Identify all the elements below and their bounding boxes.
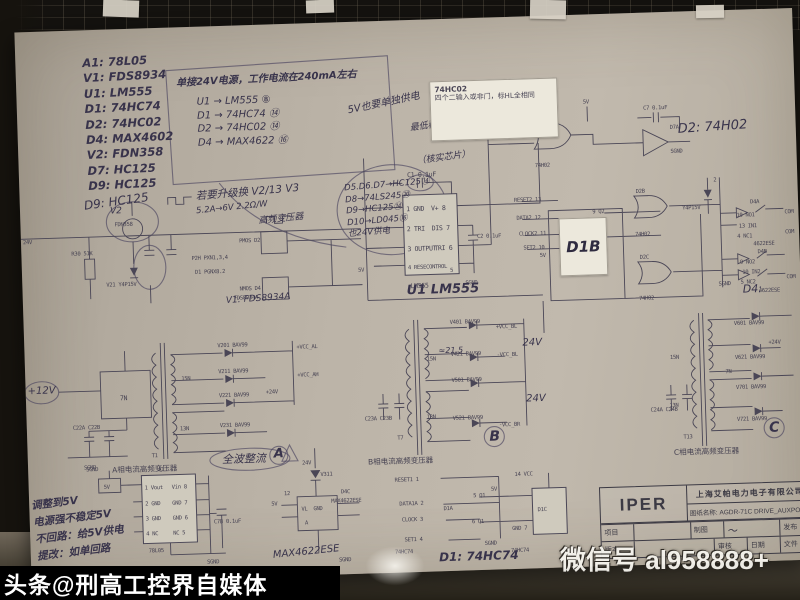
diode-v221: V221 BAV99 [219, 392, 249, 399]
label-pin2: 2 [713, 177, 716, 183]
label-c7: C7 0.1uF [643, 105, 667, 112]
winding-7n: 7N [725, 369, 731, 375]
label-d2c-chip: 74H02 [639, 295, 654, 301]
diode-v201: V201 BAV99 [217, 342, 247, 349]
d4c-pin12: 12 [284, 491, 290, 497]
diode-v211: V211 BAV99 [218, 368, 248, 375]
hand-phase-b-mark: B [489, 428, 500, 444]
u1-pin-thr: TRI 6 [434, 244, 453, 253]
d1b-5v: 5V [540, 253, 547, 259]
out-vcc-ah: +VCC_AH [297, 372, 318, 379]
label-c22: C22A C22B [73, 425, 101, 432]
u1-5v: 5V [358, 268, 365, 274]
label-24v: 24V [23, 240, 33, 246]
d4b-in2: 10 IN2 [742, 269, 760, 276]
d1a-q1bar: 6 Q1 [472, 519, 484, 525]
hand-phase-a-mark: A [274, 446, 285, 461]
label-zener: Y4P15V [682, 205, 701, 212]
d4b-no2: 9 NO2 [740, 259, 755, 265]
power-input-stage: 24V FDN358 R30 51K V21 Y4P15V PMOS D2 P2… [20, 192, 363, 309]
d1b-q: 9 Q2 [592, 209, 604, 215]
cell-release: 发布 [780, 519, 800, 536]
winding-15n: 15N [427, 356, 436, 362]
label-c2: C2 0.1uF [477, 233, 501, 240]
a1-pin-gnd3: 3 GND [146, 516, 161, 522]
drawing-name-label: 图纸名称: [690, 510, 718, 518]
u1-pin-reset: 4 RESECONTROL [408, 264, 448, 271]
watermark-band: 头条@刑高工控界自媒体 [0, 566, 340, 600]
a1-pin-vout: 1 Vout [145, 485, 163, 492]
cell-drawn: 制图 [691, 521, 724, 538]
out-24v: +24V [266, 389, 279, 395]
d1a-data1: DATA1A 2 [399, 501, 423, 508]
label-v21: V21 Y4P15V [106, 282, 137, 289]
u1-pin-vplus: V+ 8 [431, 204, 446, 212]
label-pmos: PMOS D2 [239, 238, 260, 245]
label-d1p: D1 PGNX8.2 [195, 269, 225, 276]
hand-bottom-note: 调整到5V 电源强不稳定5V 不回路：给5V供电 提改：如单回路 [30, 485, 149, 566]
a1-pin-gnd7: GND 7 [172, 500, 187, 506]
label-d4c: D4C [341, 489, 350, 495]
label-c7b: C7B 0.1uF [214, 519, 241, 526]
phase-b-transformer: 15N 13N T7 C23A C23B V401 BAV99 V421 BAV… [362, 317, 528, 467]
a1-pin-vin: Vin 8 [172, 484, 187, 490]
d1b-reset2: RESET2 13 [514, 197, 541, 204]
label-d1a: D1A [443, 506, 453, 512]
label-5v: 5V [583, 99, 590, 105]
tape-piece [306, 0, 334, 13]
u1-pin-dis: DIS 7 [432, 224, 451, 233]
a1-pin-nc5: NC 5 [173, 530, 185, 536]
note-line: D4 → MAX4622 ⑯ [198, 133, 288, 149]
tape-piece [530, 0, 566, 19]
out-minus-vcc-bl: -VCC_BL [497, 352, 519, 359]
watermark-wechat-label: 微信号 [560, 545, 638, 575]
diode-v231: V231 BAV99 [220, 422, 250, 429]
d4a-chip: 4622ESE [753, 241, 774, 248]
diode-v401: V401 BAV99 [450, 319, 480, 326]
label-a1: A1 [158, 467, 164, 473]
d4c-gnd: GND [313, 506, 322, 512]
label-t13: T13 [683, 434, 692, 440]
u1-pin-5: 5 [450, 268, 453, 274]
hand-fullwave-label: 全波整流 [222, 450, 266, 467]
label-d2c: D2C [640, 255, 649, 261]
phase-c-label: C相电流高频变压器 [674, 445, 740, 457]
label-v311: V311 [320, 472, 332, 478]
out-minus-vcc-br: -VCC_BR [499, 422, 521, 429]
diode-v501: V501 BAV99 [451, 377, 481, 384]
d4c-chip: MAX4622ESE [331, 498, 361, 505]
diode-v701: V701 BAV99 [736, 384, 766, 391]
label-com2: COM [785, 229, 795, 235]
watermark-band-text: 头条@刑高工控界自媒体 [0, 566, 267, 600]
hand-ratio-note: ≈21.5 [438, 346, 463, 356]
d4c-vl: VL [301, 506, 308, 512]
hand-phase-c-mark: C [769, 420, 780, 436]
winding-15n: 15N [670, 355, 679, 361]
cell-project: 项目 [601, 524, 634, 541]
d1b-data2: DATA2 12 [516, 215, 540, 222]
watermark-wechat: 微信号 al958888+ [560, 540, 769, 577]
out-vcc-al: +VCC_AL [296, 344, 318, 351]
label-t1: T1 [152, 453, 158, 459]
sticky-note-74hc02: 74HC02 四个二输入或非门，标HL全相同 [429, 77, 559, 141]
d4c-a: A [305, 520, 309, 526]
label-t7: T7 [397, 435, 403, 441]
analog-switches: Y4P15V 2 D4A 10 NO1 13 IN1 4 NC1 4622ESE… [681, 175, 797, 296]
hand-d1-label: D1: 74HC74 [439, 548, 519, 564]
d1a-sgnd: SGND [485, 541, 497, 547]
label-d2d-chip: 74H02 [535, 163, 550, 169]
d1a-vcc14: 14 VCC [514, 471, 532, 478]
a1-pin-nc4: 4 NC [146, 531, 158, 537]
out-vcc-bl: +VCC_BL [496, 324, 518, 331]
hand-24v-b1: 24V [522, 337, 542, 349]
diode-v521: V521 BAV99 [453, 415, 483, 422]
component-list: A1: 78L05 V1: FDS8934 U1: LM555 D1: 74HC… [82, 52, 176, 195]
a1-sgnd-top: SGND [84, 465, 96, 471]
hand-u1-label: U1 LM555 [406, 281, 479, 298]
tape-piece [103, 0, 140, 18]
label-p2h: P2H PXN1,3,4 [191, 255, 228, 262]
d1a-q1: 5 Q1 [473, 493, 485, 499]
note-chip-mapping-2: D5.D6.D7→HC125⑭ D8→74LS245⑳ D9→HC125⑭ D1… [344, 176, 434, 240]
cell-blank [634, 522, 691, 540]
out-24v: +24V [768, 339, 781, 345]
drawing-name-row: 图纸名称: AGDR-71C DRIVE_AUXPO [688, 501, 800, 521]
d1a-5v: 5V [491, 486, 498, 492]
d1a-reset1: RESET1 1 [395, 477, 419, 484]
a1-pin-gnd2: 2 GND [145, 501, 160, 507]
label-fdn358: FDN358 [114, 222, 132, 229]
title-block-header: IPER 上海艾帕电力电子有限公司 图纸名称: AGDR-71C DRIVE_A… [600, 482, 800, 525]
tape-piece [696, 5, 724, 18]
watermark-wechat-id: al958888+ [645, 545, 769, 575]
schematic-paper: 24V FDN358 R30 51K V21 Y4P15V PMOS D2 P2… [14, 8, 800, 584]
cell-signature: 〜 [724, 520, 781, 538]
company-logo: IPER [600, 486, 688, 524]
nor-gates-mid: D2B 74H02 D2C 74H02 [633, 177, 723, 302]
hand-v2-label: V2 [110, 206, 122, 216]
hand-12v-label: +12V [28, 385, 56, 397]
watermark-blob [352, 538, 438, 600]
cell-file: 文件 [781, 536, 800, 553]
d1a-gnd7: GND 7 [512, 526, 527, 532]
d4a-nc1: 4 NC1 [737, 233, 752, 239]
d1b-set2: SET2 10 [523, 245, 544, 252]
label-d2b-chip: 74H02 [635, 232, 650, 238]
phase-b-label: B相电流高频变压器 [368, 454, 434, 466]
diode-v621: V621 BAV99 [735, 354, 765, 361]
a1-chip: 78L05 [149, 548, 164, 554]
label-com3: COM [786, 274, 796, 280]
schematic-photo: 24V FDN358 R30 51K V21 Y4P15V PMOS D2 P2… [0, 0, 800, 600]
hand-d4-label: D4: [743, 282, 763, 296]
label-c23: C23A C23B [365, 416, 393, 423]
label-r30: R30 51K [71, 251, 93, 258]
u1-pin-output: 3 OUTPUT [407, 244, 437, 253]
phase-a-label: A相电流高频变压器 [112, 463, 178, 475]
diode-v601: V601 BAV99 [734, 320, 764, 327]
d4-sgnd: SGND [719, 281, 731, 287]
winding-7n: 7N [120, 394, 128, 402]
d1b-flipflop: RESET2 13 DATA2 12 CLOCK2 11 SET2 10 5V … [514, 192, 704, 334]
d1a-clock: CLOCK 3 [402, 517, 423, 524]
label-d4b: D4B [758, 249, 768, 255]
d1b-clock2: CLOCK2 11 [519, 231, 546, 238]
d4c-5v: 5V [271, 501, 278, 507]
label-c24: C24A C24B [650, 407, 678, 414]
hand-24v-b2: 24V [526, 393, 546, 405]
a1-sgnd-bot: SGND [207, 559, 219, 565]
label-d4a: D4A [750, 199, 760, 205]
label-d2b: D2B [636, 189, 646, 195]
label-nmos: NMOS D4 [239, 286, 261, 293]
d4c-24v: 24V [302, 460, 312, 466]
winding-13n: 13N [180, 426, 189, 432]
a1-pin-gnd6: GND 6 [173, 515, 188, 521]
d4a-in1: 13 IN1 [739, 223, 757, 230]
sticky-note-d1b: D1B [558, 217, 608, 276]
label-d1c: D1C [538, 507, 547, 513]
winding-13n: 13N [427, 414, 436, 420]
note-chip-mapping: U1 → LM555 ⑧ D1 → 74HC74 ⑭ D2 → 74HC02 ⑭… [196, 93, 287, 150]
d4c-sgnd: SGND [339, 557, 351, 563]
winding-15n: 15N [181, 376, 190, 382]
label-sgnd: SGND [670, 149, 682, 155]
d4a-no1: 10 NO1 [736, 212, 754, 219]
diode-v721: V721 BAV99 [737, 416, 767, 423]
schematic-content: 24V FDN358 R30 51K V21 Y4P15V PMOS D2 P2… [15, 25, 800, 584]
drawing-name-value: AGDR-71C DRIVE_AUXPO [719, 507, 800, 517]
label-com1: COM [784, 209, 794, 215]
